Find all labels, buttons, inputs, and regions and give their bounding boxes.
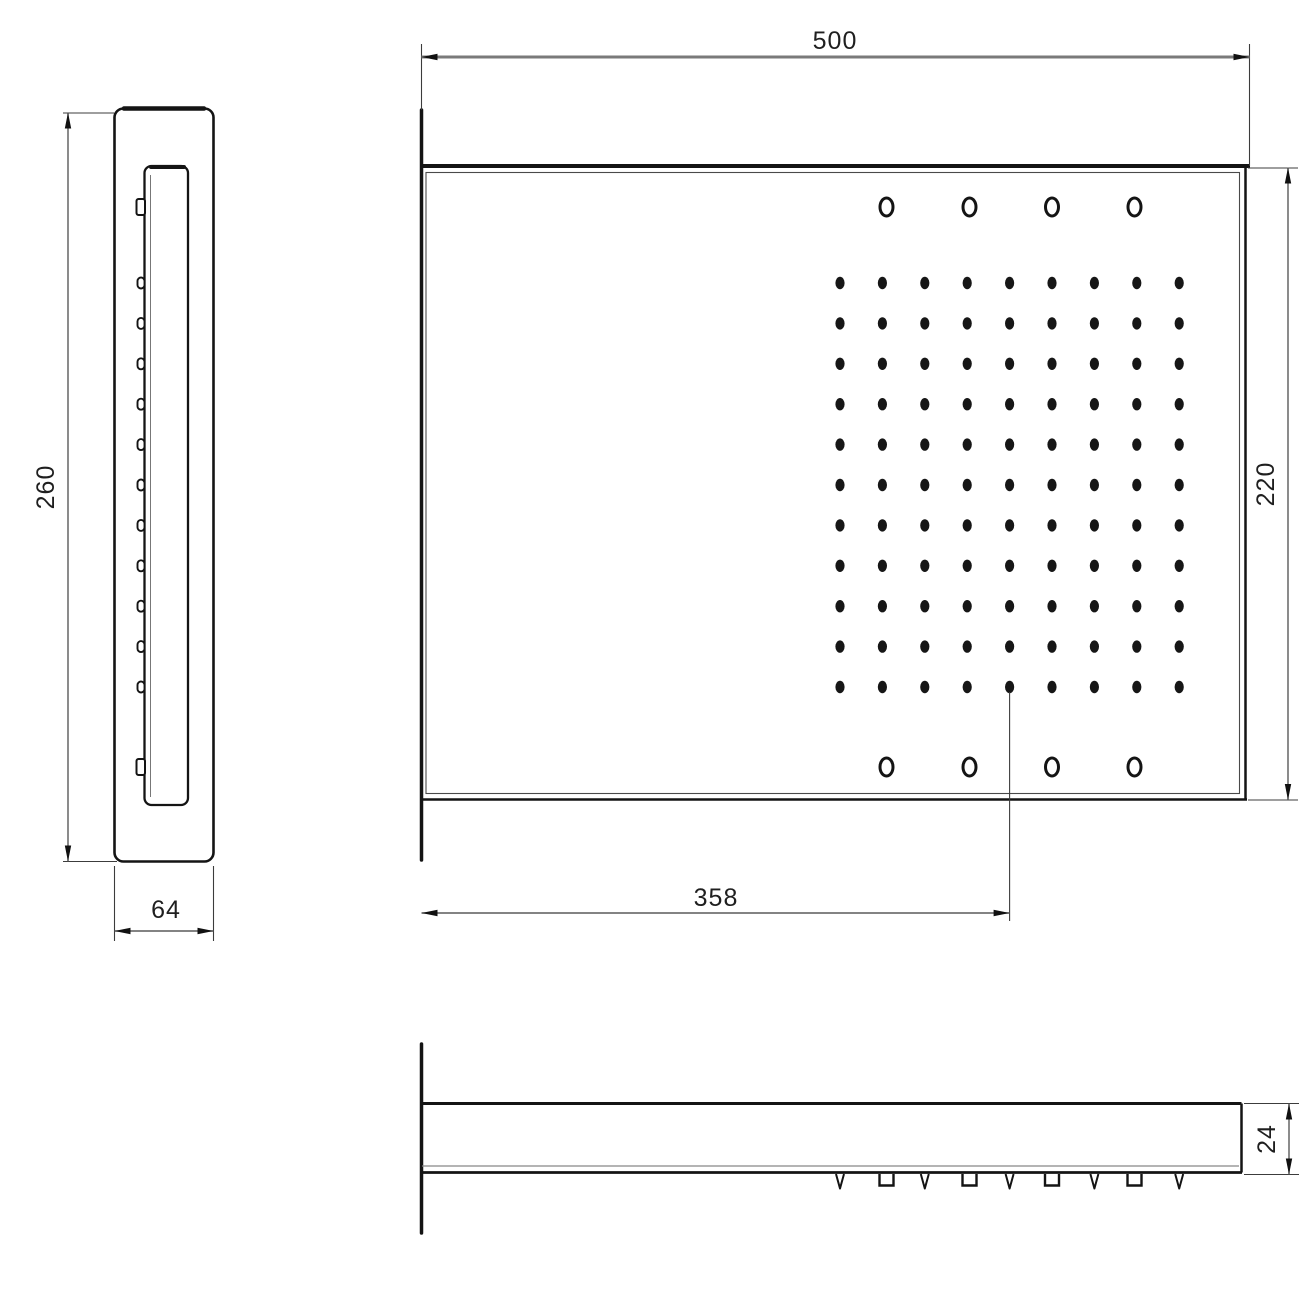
front-view: 500 220 358 — [422, 27, 1299, 921]
side-round-bump — [138, 278, 145, 289]
nozzle-dot — [878, 519, 887, 531]
nozzle-dot — [920, 317, 929, 329]
nozzle-dot — [1175, 519, 1184, 531]
nozzle-dot — [1132, 479, 1141, 491]
side-round-bump — [138, 399, 145, 410]
side-round-bump — [138, 682, 145, 693]
ring-hole — [963, 758, 976, 776]
dim-220-label: 220 — [1252, 462, 1280, 507]
nozzle-dot — [1132, 438, 1141, 450]
nozzle-dot — [1005, 479, 1014, 491]
side-square-bump — [137, 199, 146, 215]
ring-hole — [1128, 198, 1141, 216]
nozzle-dot — [1005, 600, 1014, 612]
nozzle-dot — [878, 640, 887, 652]
nozzle-dot — [835, 277, 844, 289]
ring-hole — [880, 198, 893, 216]
nozzle-dot — [1005, 358, 1014, 370]
side-round-bump — [138, 480, 145, 491]
bottom-square-sleeve — [880, 1174, 894, 1186]
nozzle-dot — [878, 317, 887, 329]
nozzle-dot — [1047, 358, 1056, 370]
nozzle-dot — [1005, 438, 1014, 450]
nozzle-dot — [835, 479, 844, 491]
side-round-bump — [138, 439, 145, 450]
nozzle-dot — [1132, 317, 1141, 329]
nozzle-dot — [1175, 358, 1184, 370]
nozzle-dot — [920, 358, 929, 370]
nozzle-dot — [1132, 560, 1141, 572]
nozzle-dot — [963, 317, 972, 329]
dim-260-arrow-top — [65, 113, 71, 129]
nozzle-dot — [1090, 519, 1099, 531]
nozzle-dot — [1047, 519, 1056, 531]
nozzle-dot — [1132, 681, 1141, 693]
ring-hole — [880, 758, 893, 776]
ring-hole — [1046, 198, 1059, 216]
nozzle-dot — [835, 640, 844, 652]
nozzle-dot — [835, 398, 844, 410]
nozzle-dot — [920, 438, 929, 450]
dim-64-arrow-right — [198, 928, 214, 934]
nozzle-dot — [878, 560, 887, 572]
nozzle-dot — [1132, 398, 1141, 410]
side-round-bump — [138, 560, 145, 571]
nozzle-dot — [1132, 277, 1141, 289]
nozzle-dot — [1047, 681, 1056, 693]
nozzle-dot — [1175, 681, 1184, 693]
nozzle-dot — [963, 438, 972, 450]
bottom-v-nozzle — [1090, 1174, 1098, 1189]
nozzle-dot — [1175, 277, 1184, 289]
nozzle-dot — [1090, 479, 1099, 491]
nozzle-dot — [920, 519, 929, 531]
nozzle-dot — [963, 560, 972, 572]
nozzle-dot — [878, 681, 887, 693]
dim-260-label: 260 — [32, 465, 60, 510]
bottom-square-sleeve — [1045, 1174, 1059, 1186]
dim-24: 24 — [1244, 1104, 1299, 1175]
drawing-svg: 260 64 500 — [0, 0, 1300, 1300]
nozzle-dot — [920, 479, 929, 491]
dim-358-label: 358 — [694, 884, 739, 912]
side-round-bump — [138, 318, 145, 329]
bottom-v-nozzle — [1175, 1174, 1183, 1189]
nozzle-dot — [1132, 358, 1141, 370]
nozzle-dot — [1090, 681, 1099, 693]
nozzle-dot — [878, 358, 887, 370]
dim-358: 358 — [422, 692, 1010, 921]
nozzle-dot — [920, 640, 929, 652]
nozzle-dot — [1047, 600, 1056, 612]
dim-500-label: 500 — [813, 27, 858, 55]
nozzle-dot — [1047, 560, 1056, 572]
side-square-bump — [137, 759, 146, 775]
dim-64-arrow-left — [115, 928, 131, 934]
nozzle-dot — [1005, 681, 1014, 693]
nozzle-dot — [1175, 317, 1184, 329]
dim-24-label: 24 — [1253, 1124, 1281, 1154]
nozzle-dot — [1175, 438, 1184, 450]
nozzle-dot — [1090, 640, 1099, 652]
nozzle-dot — [1090, 358, 1099, 370]
dim-64-label: 64 — [151, 896, 181, 924]
nozzle-dot — [878, 277, 887, 289]
ring-hole — [1046, 758, 1059, 776]
nozzle-dot — [1132, 519, 1141, 531]
nozzle-dot — [835, 600, 844, 612]
dim-220-arrow-bottom — [1285, 784, 1291, 800]
nozzle-dot — [1005, 640, 1014, 652]
nozzle-dot — [1047, 277, 1056, 289]
nozzle-dot — [1132, 640, 1141, 652]
nozzle-dot — [1047, 479, 1056, 491]
nozzle-dot — [1175, 640, 1184, 652]
dim-260: 260 — [32, 113, 117, 862]
ring-hole — [963, 198, 976, 216]
side-round-bump — [138, 641, 145, 652]
nozzle-dot — [1090, 560, 1099, 572]
side-view-nozzle-bumps — [137, 199, 146, 775]
nozzle-dot — [920, 681, 929, 693]
dim-358-arrow-left — [422, 910, 438, 916]
nozzle-dot — [920, 600, 929, 612]
dim-64: 64 — [115, 866, 214, 941]
nozzle-dot — [963, 398, 972, 410]
bottom-view-nozzle-bumps — [836, 1174, 1183, 1189]
technical-drawing-page: 260 64 500 — [0, 0, 1300, 1300]
nozzle-dot — [1090, 438, 1099, 450]
nozzle-dot — [835, 681, 844, 693]
dim-220: 220 — [1248, 168, 1298, 801]
dim-500-arrow-left — [422, 54, 438, 60]
nozzle-dot — [1005, 317, 1014, 329]
dim-220-arrow-top — [1285, 168, 1291, 184]
nozzle-dot — [920, 277, 929, 289]
nozzle-dot — [1090, 317, 1099, 329]
nozzle-dot — [1175, 600, 1184, 612]
dim-500-arrow-right — [1234, 54, 1250, 60]
nozzle-dot — [1047, 438, 1056, 450]
nozzle-dot — [878, 600, 887, 612]
nozzle-dot-grid — [835, 277, 1183, 693]
side-round-bump — [138, 358, 145, 369]
nozzle-dot — [835, 358, 844, 370]
nozzle-dot — [1090, 398, 1099, 410]
side-view-face-recess — [145, 166, 189, 805]
nozzle-dot — [963, 479, 972, 491]
dim-24-arrow-bottom — [1286, 1159, 1292, 1175]
nozzle-dot — [1090, 277, 1099, 289]
dim-24-arrow-top — [1286, 1104, 1292, 1120]
nozzle-dot — [1005, 398, 1014, 410]
nozzle-dot — [963, 640, 972, 652]
nozzle-dot — [1090, 600, 1099, 612]
bottom-square-sleeve — [963, 1174, 977, 1186]
side-view: 260 64 — [32, 109, 214, 942]
bottom-view: 24 — [422, 1044, 1300, 1233]
nozzle-dot — [835, 317, 844, 329]
nozzle-dot — [878, 398, 887, 410]
nozzle-dot — [1132, 600, 1141, 612]
plate-face-inner-outline — [426, 173, 1240, 794]
nozzle-dot — [1047, 317, 1056, 329]
nozzle-dot — [835, 519, 844, 531]
dim-500: 500 — [422, 27, 1250, 166]
nozzle-dot — [963, 277, 972, 289]
nozzle-dot — [835, 438, 844, 450]
nozzle-dot — [1005, 277, 1014, 289]
dim-358-arrow-right — [994, 910, 1010, 916]
bottom-v-nozzle — [1006, 1174, 1014, 1189]
nozzle-dot — [963, 358, 972, 370]
side-round-bump — [138, 601, 145, 612]
bottom-square-sleeve — [1128, 1174, 1142, 1186]
nozzle-dot — [920, 398, 929, 410]
bottom-v-nozzle — [836, 1174, 844, 1189]
nozzle-dot — [963, 600, 972, 612]
nozzle-dot — [1175, 398, 1184, 410]
nozzle-dot — [920, 560, 929, 572]
nozzle-dot — [963, 519, 972, 531]
nozzle-dot — [1047, 398, 1056, 410]
nozzle-dot — [963, 681, 972, 693]
side-round-bump — [138, 520, 145, 531]
dim-260-arrow-bottom — [65, 846, 71, 862]
nozzle-dot — [1005, 519, 1014, 531]
nozzle-dot — [1175, 479, 1184, 491]
bottom-v-nozzle — [921, 1174, 929, 1189]
nozzle-dot — [878, 479, 887, 491]
nozzle-dot — [835, 560, 844, 572]
nozzle-dot — [1047, 640, 1056, 652]
nozzle-dot — [1005, 560, 1014, 572]
nozzle-dot — [1175, 560, 1184, 572]
nozzle-dot — [878, 438, 887, 450]
ring-hole — [1128, 758, 1141, 776]
